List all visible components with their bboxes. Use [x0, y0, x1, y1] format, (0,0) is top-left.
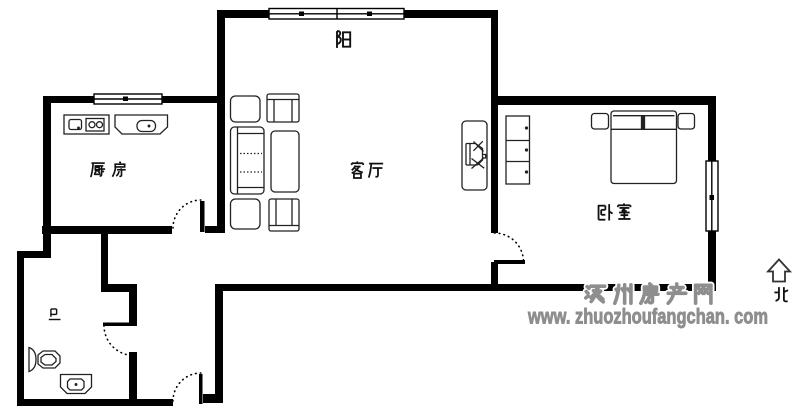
svg-text:www. zhuozhoufangchan. com: www. zhuozhoufangchan. com: [527, 305, 768, 329]
